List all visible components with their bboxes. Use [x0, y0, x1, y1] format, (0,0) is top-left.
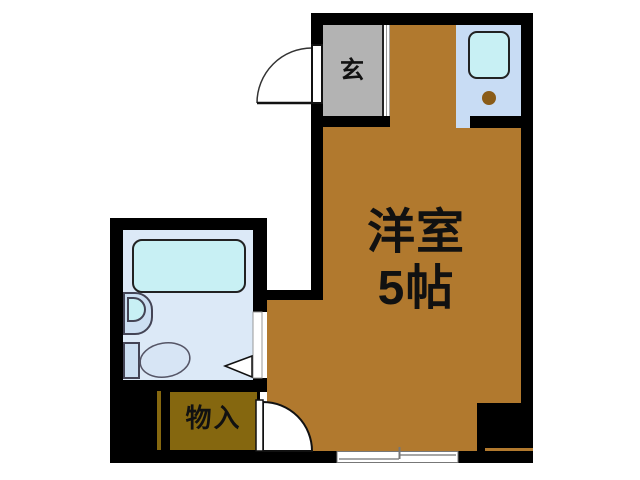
- entrance-door-leaf: [312, 45, 322, 103]
- main-room-label-size: 5帖: [378, 261, 455, 317]
- toilet-tank: [123, 342, 140, 379]
- main-room-floor-extension: [267, 300, 323, 451]
- bathroom-door: [253, 312, 262, 378]
- kitchen-burner-knob: [482, 91, 496, 105]
- kitchen-sink: [468, 31, 510, 79]
- main-room-label-name: 洋室: [367, 205, 465, 261]
- wall-bath-right-upper: [253, 218, 267, 312]
- wall-corner-block: [477, 403, 533, 463]
- wall-top: [311, 13, 533, 25]
- wall-under-kitchen: [470, 116, 533, 128]
- window: [337, 452, 458, 463]
- entrance-door-arc: [257, 48, 312, 103]
- corner-block-accent-line: [485, 448, 533, 451]
- wall-left-main: [311, 103, 323, 300]
- main-room-corridor-floor: [390, 25, 456, 127]
- entrance-label: 玄: [322, 25, 382, 116]
- storage-label: 物入: [167, 387, 260, 451]
- wall-bottom-left-segment: [110, 451, 337, 463]
- wall-right: [521, 13, 533, 463]
- wall-under-entrance: [311, 116, 390, 127]
- kitchen-counter-step: [456, 116, 470, 128]
- storage-wall-accent-line: [157, 391, 161, 450]
- main-room-label: 洋室 5帖: [343, 205, 489, 317]
- entrance-sliding-door: [382, 25, 390, 116]
- bathtub: [132, 239, 246, 293]
- floorplan: 玄 洋室 5帖 物入: [0, 0, 640, 480]
- wall-bath-top: [110, 218, 267, 230]
